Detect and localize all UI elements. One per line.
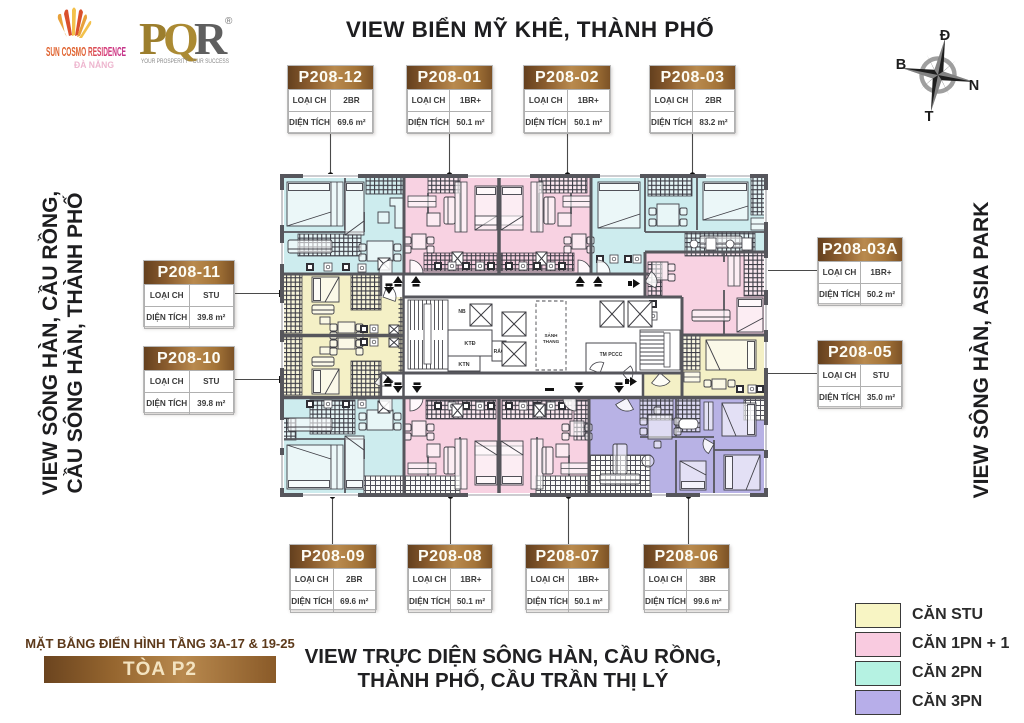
svg-text:KTN: KTN [458,362,469,368]
svg-text:TM PCCC: TM PCCC [600,352,623,358]
svg-text:THANG: THANG [543,339,560,344]
svg-text:SẢNH: SẢNH [544,332,558,338]
svg-text:KTĐ: KTĐ [464,341,475,347]
svg-text:NB: NB [458,309,466,315]
